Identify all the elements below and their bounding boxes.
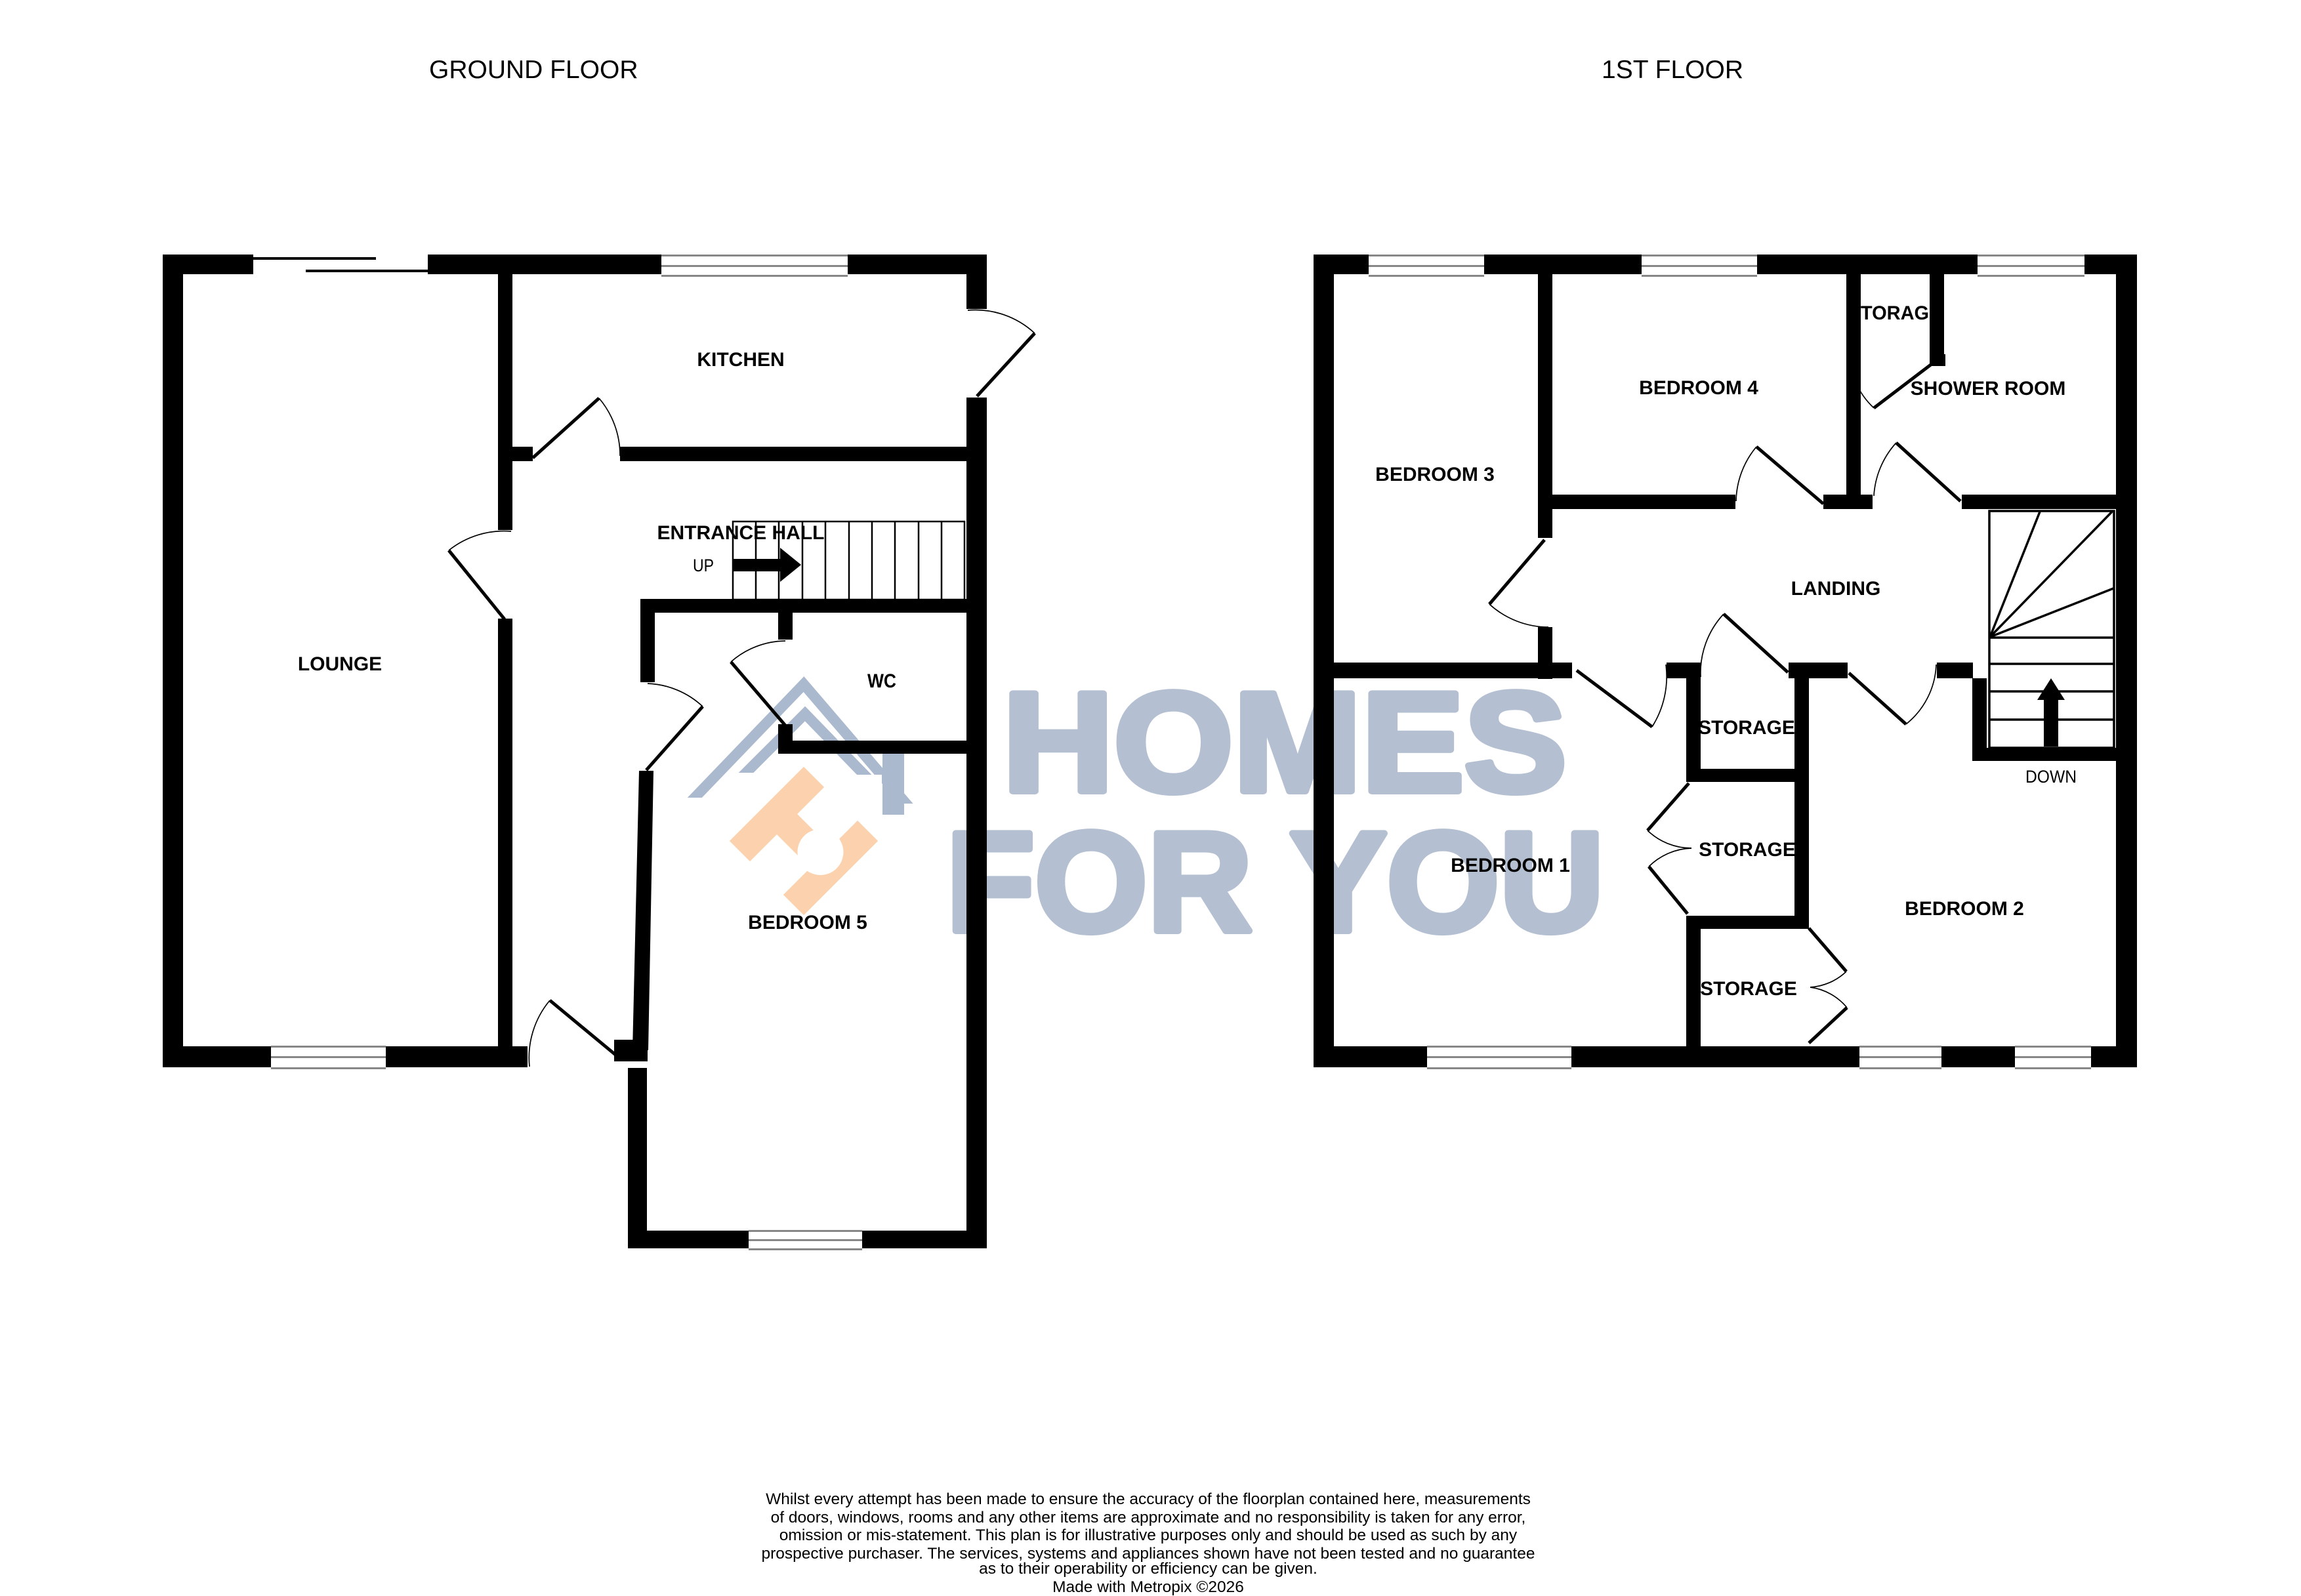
svg-text:omission or mis-statement. Thi: omission or mis-statement. This plan is … <box>779 1526 1518 1544</box>
svg-text:Whilst every attempt has been: Whilst every attempt has been made to en… <box>766 1490 1531 1508</box>
svg-text:1ST FLOOR: 1ST FLOOR <box>1602 56 1743 84</box>
svg-text:KITCHEN: KITCHEN <box>697 349 784 371</box>
svg-text:DOWN: DOWN <box>2025 767 2077 787</box>
svg-text:HOMES: HOMES <box>1003 663 1567 821</box>
svg-text:SHOWER ROOM: SHOWER ROOM <box>1911 378 2066 399</box>
svg-text:GROUND FLOOR: GROUND FLOOR <box>429 56 638 84</box>
svg-text:UP: UP <box>693 556 714 575</box>
svg-text:FOR YOU: FOR YOU <box>946 802 1604 961</box>
svg-text:as to their operability or eff: as to their operability or efficiency ca… <box>979 1560 1317 1578</box>
svg-text:STORAGE: STORAGE <box>1698 717 1795 739</box>
svg-text:BEDROOM 5: BEDROOM 5 <box>748 912 867 933</box>
svg-text:LOUNGE: LOUNGE <box>298 653 382 675</box>
svg-text:STORAGE: STORAGE <box>1848 302 1942 324</box>
svg-text:BEDROOM 2: BEDROOM 2 <box>1905 898 2024 920</box>
svg-text:BEDROOM 3: BEDROOM 3 <box>1375 464 1495 485</box>
svg-text:BEDROOM 4: BEDROOM 4 <box>1639 377 1758 399</box>
svg-text:BEDROOM 1: BEDROOM 1 <box>1451 855 1570 876</box>
svg-text:STORAGE: STORAGE <box>1700 978 1797 1000</box>
svg-text:WC: WC <box>867 670 896 692</box>
svg-text:STORAGE: STORAGE <box>1699 839 1796 861</box>
svg-text:ENTRANCE HALL: ENTRANCE HALL <box>657 522 825 544</box>
svg-text:of doors, windows, rooms and a: of doors, windows, rooms and any other i… <box>771 1509 1526 1526</box>
svg-text:Made with Metropix ©2026: Made with Metropix ©2026 <box>1052 1578 1244 1596</box>
svg-text:LANDING: LANDING <box>1791 578 1881 600</box>
